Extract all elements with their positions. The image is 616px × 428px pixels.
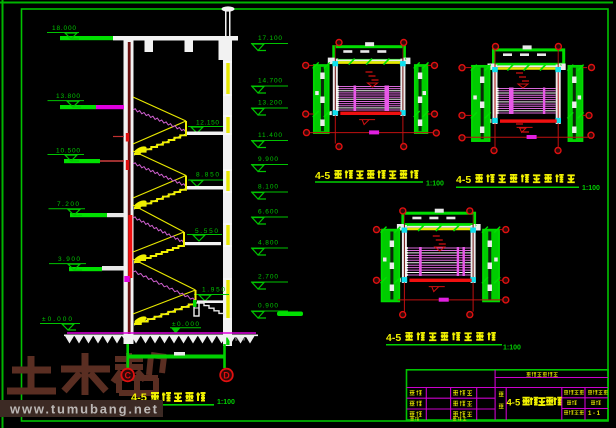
svg-text:7.200: 7.200 [57, 201, 79, 208]
svg-text:6.600: 6.600 [258, 209, 278, 216]
svg-text:18.000: 18.000 [52, 25, 76, 32]
svg-text:13.800: 13.800 [56, 93, 80, 100]
svg-text:1:100: 1:100 [582, 185, 600, 192]
svg-text:14.700: 14.700 [258, 78, 282, 85]
svg-text:D: D [223, 370, 230, 380]
svg-text:9.2m: 9.2m [235, 337, 245, 342]
svg-text:2.700: 2.700 [258, 274, 278, 281]
svg-text:12.150: 12.150 [196, 120, 219, 127]
svg-text:11.400: 11.400 [258, 132, 282, 139]
svg-text:4.800: 4.800 [258, 240, 278, 247]
svg-text:1 - 1: 1 - 1 [588, 411, 601, 417]
svg-text:±0.000: ±0.000 [172, 321, 199, 328]
svg-text:1:100: 1:100 [217, 399, 235, 406]
svg-text:4-5: 4-5 [315, 170, 330, 182]
svg-text:4-5: 4-5 [456, 174, 471, 186]
svg-text:0.900: 0.900 [258, 303, 278, 310]
svg-text:4-5: 4-5 [507, 397, 521, 408]
svg-text:8.100: 8.100 [258, 184, 278, 191]
svg-text:4-5: 4-5 [386, 332, 401, 344]
svg-text:1:100: 1:100 [503, 345, 521, 352]
svg-text:17.100: 17.100 [258, 35, 282, 42]
svg-text:3.900: 3.900 [58, 256, 80, 263]
svg-text:9.900: 9.900 [258, 156, 278, 163]
svg-text:5.550: 5.550 [195, 228, 218, 235]
svg-text:C: C [124, 370, 131, 380]
svg-text:10.500: 10.500 [56, 148, 80, 155]
svg-text:8.850: 8.850 [196, 172, 219, 179]
svg-text:13.200: 13.200 [258, 100, 282, 107]
svg-text:www.tumubang.net: www.tumubang.net [9, 402, 158, 417]
svg-text:1:100: 1:100 [426, 181, 444, 188]
svg-text:1.950: 1.950 [202, 287, 225, 294]
